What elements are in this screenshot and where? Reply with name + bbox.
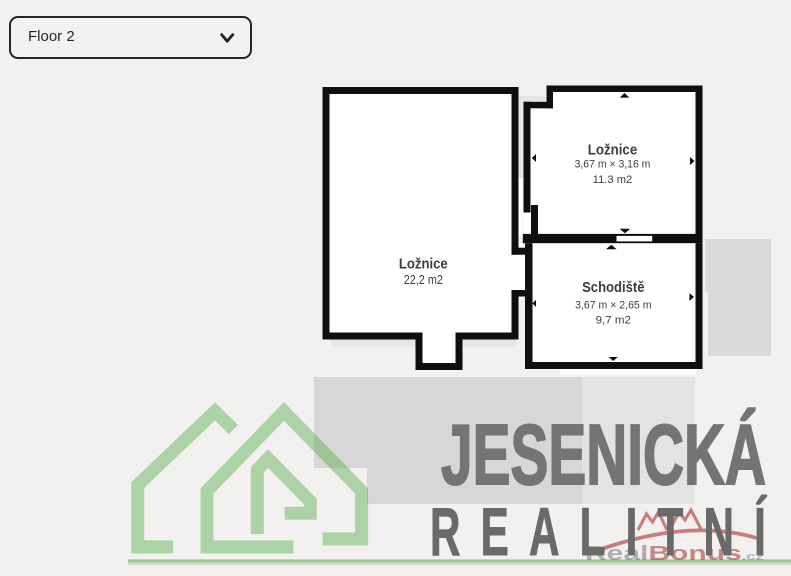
svg-text:3,67 m × 2,65 m: 3,67 m × 2,65 m <box>575 300 651 312</box>
svg-text:11.3 m2: 11.3 m2 <box>593 174 633 186</box>
svg-text:Ložnice: Ložnice <box>588 141 637 158</box>
svg-text:Ložnice: Ložnice <box>399 255 448 272</box>
svg-text:22,2 m2: 22,2 m2 <box>404 273 443 287</box>
svg-text:9,7 m2: 9,7 m2 <box>596 315 631 327</box>
svg-text:3,67 m × 3,16 m: 3,67 m × 3,16 m <box>575 159 651 171</box>
svg-text:Schodiště: Schodiště <box>582 279 644 296</box>
